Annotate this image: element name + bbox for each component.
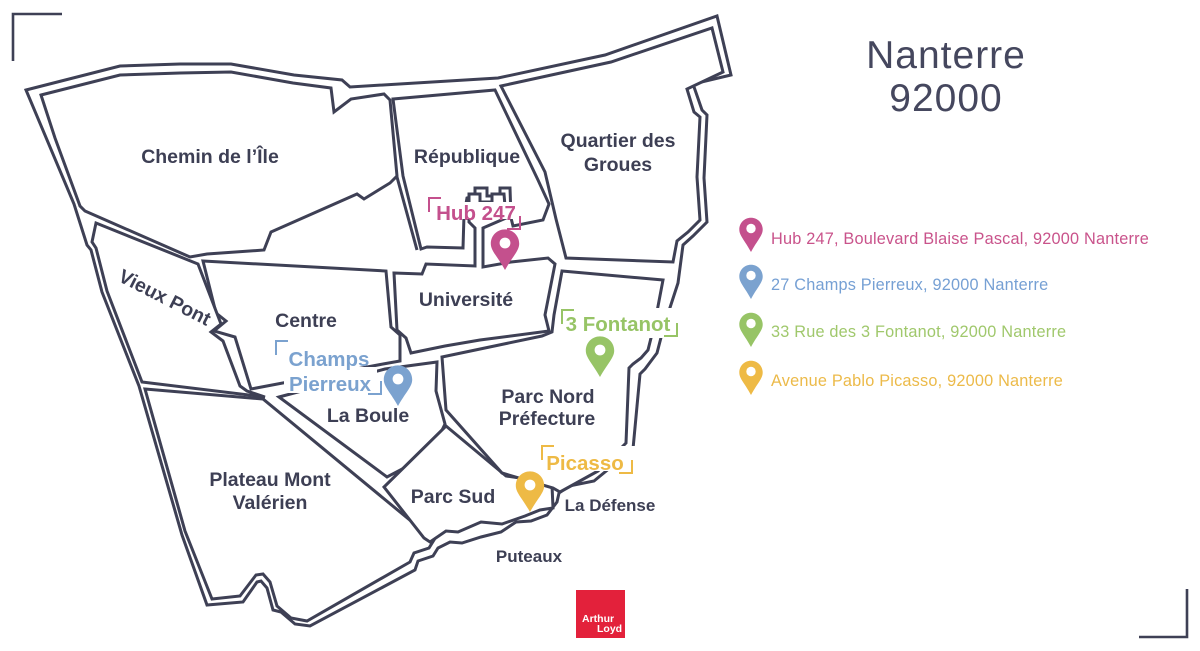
svg-text:République: République [414, 146, 520, 168]
svg-text:Puteaux: Puteaux [496, 547, 563, 566]
svg-text:27 Champs Pierreux, 92000 Nant: 27 Champs Pierreux, 92000 Nanterre [771, 276, 1048, 294]
svg-text:Quartier des: Quartier des [561, 130, 676, 152]
svg-text:Avenue Pablo Picasso, 92000 Na: Avenue Pablo Picasso, 92000 Nanterre [771, 372, 1063, 390]
svg-text:Plateau Mont: Plateau Mont [209, 469, 331, 491]
svg-text:La Boule: La Boule [327, 405, 409, 427]
svg-text:Parc Nord: Parc Nord [501, 386, 594, 408]
svg-text:Hub 247, Boulevard Blaise Pasc: Hub 247, Boulevard Blaise Pascal, 92000 … [771, 230, 1149, 248]
svg-text:Pierreux: Pierreux [289, 373, 372, 396]
svg-text:3 Fontanot: 3 Fontanot [566, 313, 671, 336]
svg-text:Centre: Centre [275, 310, 337, 332]
svg-text:Groues: Groues [584, 154, 652, 176]
svg-text:Champs: Champs [289, 348, 370, 371]
svg-text:Hub 247: Hub 247 [436, 202, 516, 225]
svg-text:Nanterre: Nanterre [866, 34, 1026, 77]
svg-text:Université: Université [419, 289, 513, 311]
svg-text:33 Rue des 3 Fontanot, 92000 N: 33 Rue des 3 Fontanot, 92000 Nanterre [771, 323, 1066, 341]
svg-text:Picasso: Picasso [546, 452, 624, 475]
svg-text:92000: 92000 [889, 77, 1002, 120]
svg-text:Parc Sud: Parc Sud [411, 486, 496, 508]
svg-text:La Défense: La Défense [565, 496, 656, 515]
svg-text:Chemin de l’Île: Chemin de l’Île [141, 144, 279, 168]
svg-text:Préfecture: Préfecture [499, 408, 596, 430]
svg-text:Valérien: Valérien [233, 492, 308, 514]
svg-text:Loyd: Loyd [597, 623, 622, 635]
